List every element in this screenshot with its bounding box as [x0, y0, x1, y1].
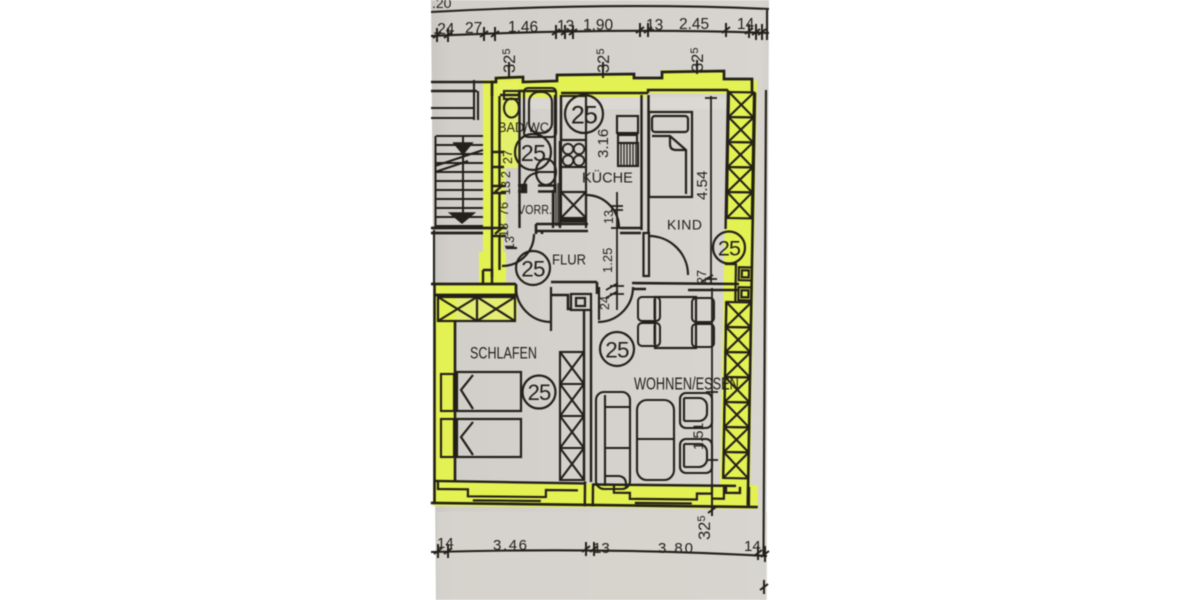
svg-text:24: 24	[598, 296, 612, 310]
svg-text:27: 27	[501, 150, 515, 164]
svg-text:27: 27	[465, 20, 482, 37]
svg-text:13: 13	[499, 181, 513, 195]
svg-text:3.80: 3.80	[658, 540, 693, 557]
svg-text:25: 25	[571, 102, 597, 130]
svg-text:4.54: 4.54	[694, 171, 711, 200]
svg-text:1.51: 1.51	[690, 423, 706, 450]
svg-text:13: 13	[593, 540, 610, 557]
svg-text:.24: .24	[433, 21, 455, 38]
svg-text:25: 25	[605, 338, 629, 363]
svg-text:13: 13	[557, 18, 574, 35]
svg-text:1.25: 1.25	[600, 248, 615, 273]
svg-text:27: 27	[695, 270, 709, 284]
svg-text:WOHNEN/ESSEN: WOHNEN/ESSEN	[634, 375, 739, 395]
svg-text:14: 14	[737, 16, 755, 33]
svg-text:13: 13	[602, 210, 616, 224]
svg-text:.20: .20	[432, 0, 452, 11]
svg-text:KIND: KIND	[667, 217, 702, 233]
svg-text:FLUR: FLUR	[552, 251, 586, 268]
svg-text:3.16: 3.16	[595, 129, 612, 158]
svg-text:2.45: 2.45	[679, 16, 709, 33]
svg-text:25: 25	[521, 257, 545, 282]
svg-text:1.90: 1.90	[583, 17, 614, 34]
svg-text:13: 13	[497, 223, 511, 237]
svg-text:13: 13	[503, 236, 517, 250]
svg-text:BAD/WC: BAD/WC	[498, 119, 549, 135]
svg-text:3.46: 3.46	[493, 537, 527, 554]
svg-text:25: 25	[528, 380, 551, 405]
svg-text:SCHLAFEN: SCHLAFEN	[470, 344, 537, 363]
svg-text:14: 14	[744, 538, 761, 555]
svg-text:1.46: 1.46	[508, 19, 538, 36]
svg-text:13: 13	[646, 17, 663, 34]
svg-text:25: 25	[521, 140, 546, 166]
svg-text:VORR.: VORR.	[518, 202, 552, 217]
svg-text:14: 14	[437, 535, 454, 552]
svg-text:25: 25	[718, 237, 741, 261]
svg-text:76: 76	[497, 202, 511, 216]
svg-text:KÜCHE: KÜCHE	[582, 169, 633, 187]
svg-text:2: 2	[499, 171, 513, 178]
